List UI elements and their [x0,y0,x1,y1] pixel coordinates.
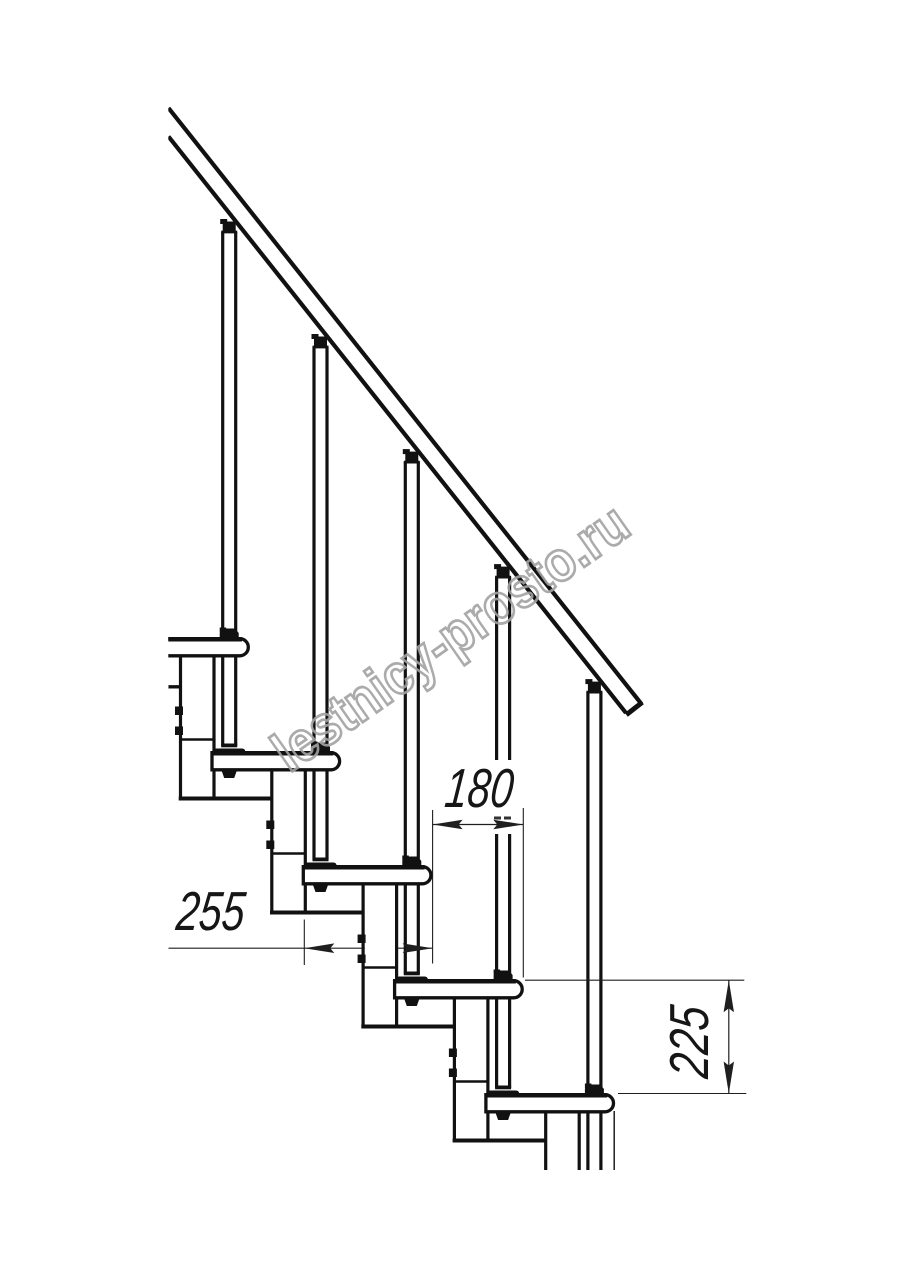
svg-text:255: 255 [173,881,249,942]
svg-text:180: 180 [442,758,516,819]
svg-text:225: 225 [659,1002,720,1081]
